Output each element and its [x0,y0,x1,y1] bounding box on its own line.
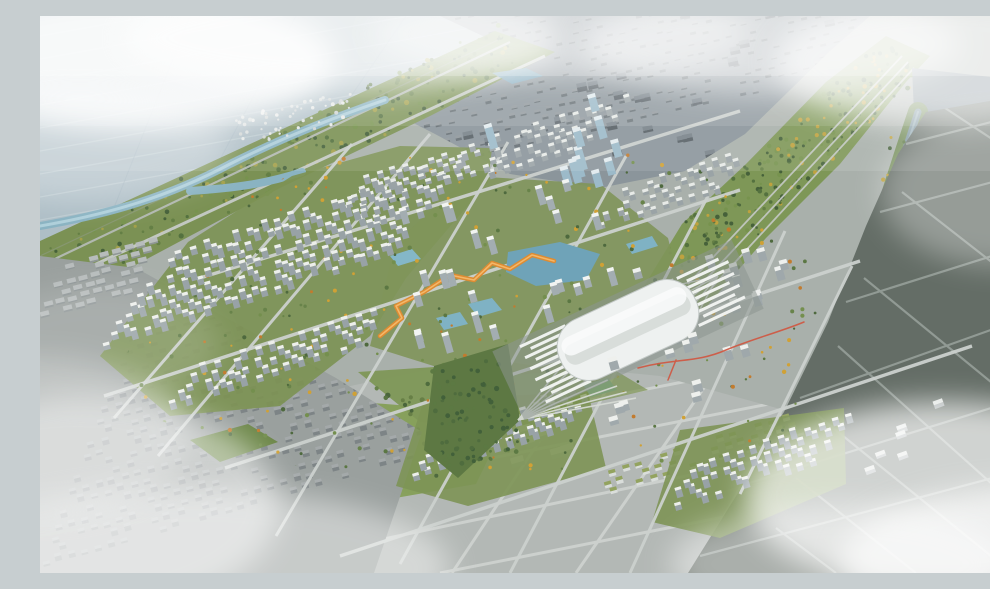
city-aerial-rendering [40,16,990,573]
masterplan-scene [40,16,990,573]
